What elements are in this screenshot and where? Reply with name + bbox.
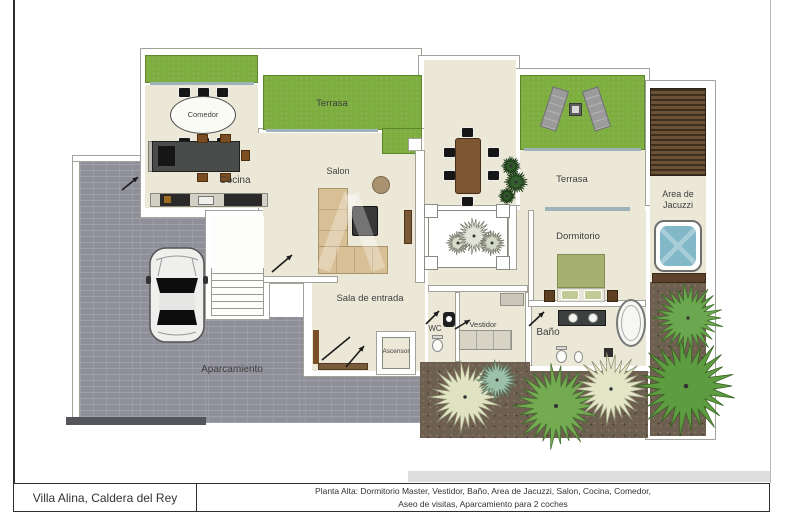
vestidor-label: Vestidor — [457, 321, 509, 330]
project-name: Villa Alina, Caldera del Rey — [14, 484, 197, 511]
bush-center — [496, 379, 499, 382]
area-jacuzzi-label-line2: Jacuzzi — [648, 200, 708, 210]
bush-center — [515, 181, 518, 184]
terrace-right-label: Terrasa — [543, 175, 601, 186]
ascensor-label: Ascensor — [376, 348, 416, 355]
bush-center — [506, 195, 509, 198]
plan-description: Planta Alta: Dormitorio Master, Vestidor… — [197, 484, 769, 511]
area-jacuzzi-label-line1: Area de — [648, 189, 708, 199]
wc-label: WC — [423, 324, 447, 333]
title-block: Villa Alina, Caldera del Rey Planta Alta… — [13, 483, 770, 512]
bush-center — [473, 235, 476, 238]
salon-label: Salon — [314, 166, 362, 176]
bush-center — [609, 387, 612, 390]
bush-center — [684, 384, 689, 389]
floor-plan-sheet: Comedor — [0, 0, 787, 524]
bush-center — [463, 395, 466, 398]
bush-center — [491, 242, 494, 245]
bush-center — [686, 316, 689, 319]
cocina-label: Cocina — [209, 175, 261, 187]
bano-label: Baño — [524, 327, 572, 339]
dormitorio-label: Dormitorio — [539, 232, 617, 243]
plan-description-line2: Aseo de visitas, Aparcamiento para 2 coc… — [398, 498, 568, 511]
bush-center — [457, 242, 460, 245]
door-swing-line — [322, 337, 350, 360]
plan-description-line1: Planta Alta: Dormitorio Master, Vestidor… — [315, 485, 651, 498]
bush-center — [554, 404, 558, 408]
terrace-top-label: Terrasa — [303, 99, 361, 110]
bush-center — [510, 165, 513, 168]
aparcamiento-label: Aparcamiento — [183, 364, 281, 376]
sala-entrada-label: Sala de entrada — [318, 294, 422, 305]
plants-and-doors-overlay — [0, 0, 787, 524]
